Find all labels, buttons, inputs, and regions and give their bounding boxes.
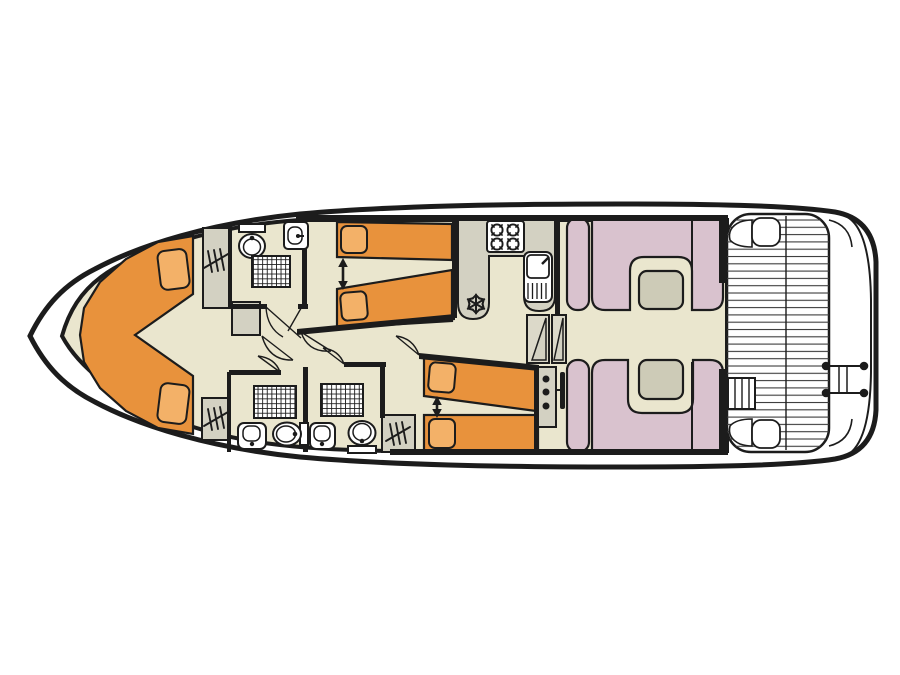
wall [344,362,386,367]
deck-seat-top [752,218,780,246]
deck-seat-bottom [752,420,780,448]
instrument-dot [543,389,550,396]
shower-grid [252,256,290,287]
wall [229,304,267,309]
pillow [157,382,191,424]
companionway-steps [527,315,566,363]
wall [452,219,457,318]
wall [228,224,232,306]
wall [229,370,281,375]
stove-burner-icon [491,238,502,249]
galley-sink-basin [527,255,549,278]
dinette-table [639,360,683,399]
instrument-dot [543,403,550,410]
dinette-table [639,271,683,309]
stove-burner-icon [507,238,518,249]
pillow [341,226,367,253]
boat-floor-plan [0,0,900,675]
dinette-seat-side [567,218,589,310]
instrument-dot [543,376,550,383]
wall [534,365,539,452]
boat-floor-plan-page [0,0,900,675]
shower-grid [321,384,363,416]
dinette-seat-side [567,360,589,452]
toilet-cistern [348,446,376,453]
stove-burner-icon [491,224,502,235]
wall [719,369,726,453]
toilet-dot [360,439,365,444]
pillow [157,248,191,290]
shower-grid [254,386,296,418]
pillow [429,419,455,448]
deck-planks [727,214,829,452]
wall [390,449,728,455]
tap-dot [296,234,300,238]
pillow [340,291,368,321]
pillow [428,362,456,393]
toilet-dot [250,236,255,241]
tap-dot [250,442,254,446]
toilet-cistern [239,224,265,232]
deck-ladder [728,378,755,409]
steering-wheel [560,372,565,409]
wall [380,362,385,418]
stove-burner-icon [507,224,518,235]
wall [719,217,726,283]
toilet-dot [293,432,298,437]
wall [555,219,560,315]
wardrobe-forward [203,228,229,308]
tap-dot [320,442,324,446]
